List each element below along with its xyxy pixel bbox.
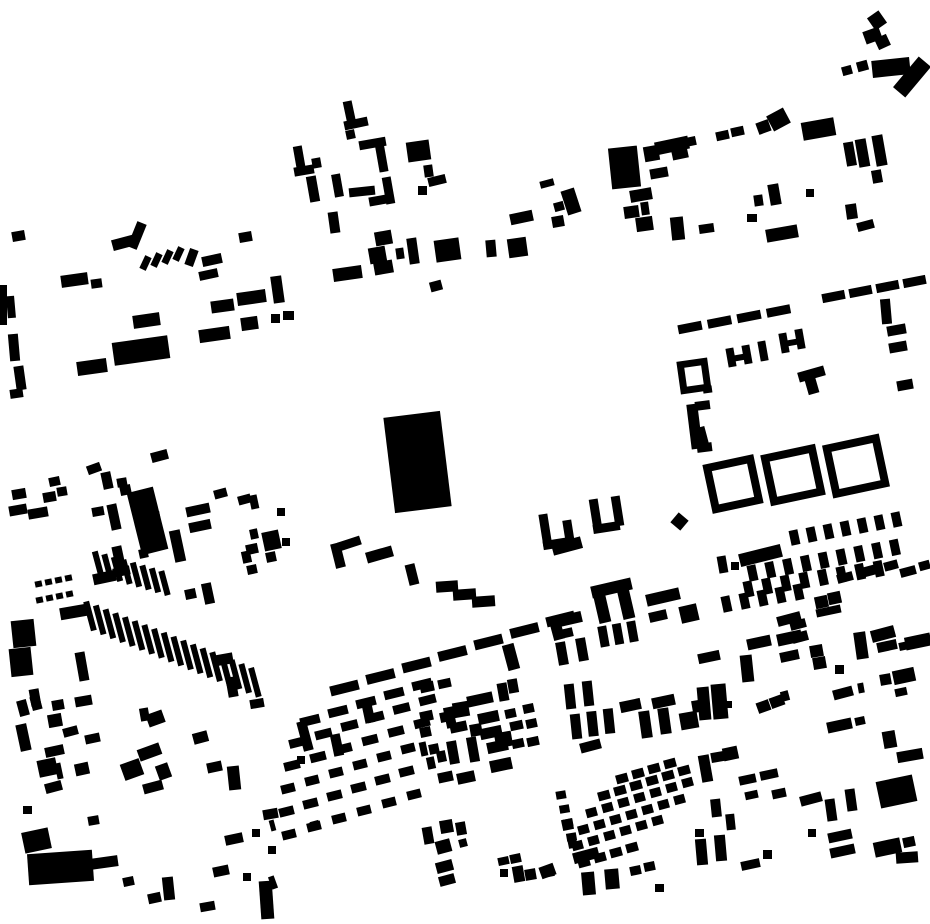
building-footprint xyxy=(827,829,853,844)
building-footprint xyxy=(438,873,456,887)
building-footprint xyxy=(349,186,376,198)
building-footprint xyxy=(623,205,640,219)
row-building-footprint xyxy=(473,634,504,651)
row-building-footprint xyxy=(874,514,886,531)
building-footprint xyxy=(48,476,61,487)
building-footprint xyxy=(283,311,294,320)
row-building-footprint xyxy=(200,648,214,679)
row-building-footprint xyxy=(326,789,343,801)
building-footprint xyxy=(765,224,799,242)
building-footprint xyxy=(509,853,522,864)
building-footprint xyxy=(651,694,676,710)
building-footprint xyxy=(841,65,853,76)
row-building-footprint xyxy=(383,687,405,701)
building-footprint xyxy=(888,341,907,354)
building-footprint xyxy=(44,780,63,794)
building-footprint xyxy=(74,695,92,708)
row-building-footprint xyxy=(35,596,43,603)
building-footprint xyxy=(435,859,454,874)
building-footprint xyxy=(695,839,708,866)
building-footprint xyxy=(504,708,517,719)
row-building-footprint xyxy=(418,694,437,707)
building-footprint xyxy=(84,733,101,745)
courtyard-building-footprint xyxy=(765,448,821,501)
row-building-footprint xyxy=(374,773,391,785)
row-building-footprint xyxy=(645,775,659,787)
building-footprint xyxy=(714,835,727,862)
row-building-footprint xyxy=(823,523,835,540)
building-footprint xyxy=(555,641,569,665)
row-building-footprint xyxy=(161,249,173,265)
building-footprint xyxy=(201,253,223,267)
building-footprint xyxy=(138,548,149,559)
row-building-footprint xyxy=(564,684,577,710)
building-footprint xyxy=(13,365,26,390)
row-building-footprint xyxy=(871,542,883,560)
building-footprint xyxy=(122,876,135,887)
building-footprint xyxy=(853,631,869,659)
building-footprint xyxy=(776,630,803,647)
row-building-footprint xyxy=(585,807,598,819)
building-footprint xyxy=(756,699,772,714)
building-footprint xyxy=(871,169,883,184)
row-building-footprint xyxy=(707,315,732,328)
building-footprint xyxy=(710,751,725,763)
building-footprint xyxy=(655,884,664,892)
building-footprint xyxy=(715,130,730,142)
building-footprint xyxy=(455,821,467,836)
row-building-footprint xyxy=(835,548,847,566)
building-footprint xyxy=(526,736,540,747)
building-footprint xyxy=(767,183,781,206)
row-building-footprint xyxy=(677,321,702,334)
building-footprint xyxy=(269,820,277,832)
row-building-footprint xyxy=(746,564,758,582)
building-footprint xyxy=(670,512,688,530)
building-footprint xyxy=(879,673,892,686)
row-building-footprint xyxy=(766,304,791,317)
building-footprint xyxy=(162,876,175,900)
building-footprint xyxy=(771,788,787,800)
row-building-footprint xyxy=(398,765,415,777)
row-building-footprint xyxy=(661,770,675,782)
building-footprint xyxy=(551,215,565,228)
building-footprint xyxy=(883,559,899,571)
building-footprint xyxy=(210,298,234,313)
row-building-footprint xyxy=(509,622,540,639)
row-building-footprint xyxy=(161,632,175,663)
building-footprint xyxy=(240,316,259,331)
row-building-footprint xyxy=(158,570,170,596)
building-footprint xyxy=(697,687,712,721)
building-footprint xyxy=(374,141,388,172)
figure-ground-map xyxy=(0,0,930,924)
row-building-footprint xyxy=(577,824,590,836)
building-footprint xyxy=(485,240,496,258)
building-footprint xyxy=(246,564,258,575)
building-footprint xyxy=(575,637,589,661)
building-footprint xyxy=(829,844,856,859)
row-building-footprint xyxy=(327,705,349,719)
building-footprint xyxy=(657,707,672,734)
row-building-footprint xyxy=(626,620,639,642)
row-building-footprint xyxy=(150,252,162,268)
building-footprint xyxy=(243,873,251,881)
building-footprint xyxy=(150,449,169,463)
building-footprint xyxy=(15,723,31,752)
building-footprint xyxy=(678,603,699,624)
building-footprint xyxy=(452,701,470,719)
building-footprint xyxy=(27,850,94,885)
row-building-footprint xyxy=(122,616,136,647)
building-footprint xyxy=(604,868,620,889)
row-building-footprint xyxy=(800,555,812,573)
building-footprint xyxy=(799,791,823,806)
building-footprint xyxy=(880,299,892,325)
building-footprint xyxy=(899,565,917,578)
building-footprint xyxy=(100,471,113,490)
building-footprint xyxy=(472,595,496,608)
row-building-footprint xyxy=(840,520,852,537)
building-footprint xyxy=(184,588,197,600)
building-footprint xyxy=(670,216,685,240)
row-building-footprint xyxy=(619,825,632,837)
building-footprint xyxy=(127,487,169,556)
building-footprint xyxy=(581,871,596,895)
building-footprint xyxy=(525,718,538,729)
building-footprint xyxy=(560,187,581,215)
row-building-footprint xyxy=(582,681,595,707)
row-building-footprint xyxy=(853,545,865,563)
building-footprint xyxy=(213,487,228,499)
building-footprint xyxy=(730,126,745,138)
building-footprint xyxy=(843,141,857,166)
row-building-footprint xyxy=(314,728,333,741)
building-footprint xyxy=(497,856,509,866)
building-footprint xyxy=(469,723,483,737)
row-building-footprint xyxy=(818,551,830,569)
building-footprint xyxy=(902,836,916,848)
row-building-footprint xyxy=(817,569,829,587)
building-footprint xyxy=(331,173,344,197)
building-footprint xyxy=(876,774,918,808)
building-footprint xyxy=(91,506,104,517)
row-building-footprint xyxy=(356,804,372,816)
building-footprint xyxy=(8,334,20,362)
row-building-footprint xyxy=(92,551,104,577)
building-footprint xyxy=(51,699,65,711)
building-footprint xyxy=(896,851,919,864)
building-footprint xyxy=(539,178,554,188)
row-building-footprint xyxy=(806,526,818,543)
row-building-footprint xyxy=(647,763,661,775)
building-footprint xyxy=(6,296,16,319)
row-building-footprint xyxy=(673,794,686,806)
row-building-footprint xyxy=(64,574,72,581)
row-building-footprint xyxy=(406,788,422,800)
building-footprint xyxy=(522,703,535,714)
row-building-footprint xyxy=(848,285,872,298)
row-building-footprint xyxy=(309,751,327,764)
row-building-footprint xyxy=(603,708,616,734)
row-building-footprint xyxy=(629,780,643,792)
courtyard-building-footprint xyxy=(707,459,759,509)
building-footprint xyxy=(679,711,700,731)
building-footprint xyxy=(825,798,838,821)
building-footprint xyxy=(227,765,241,790)
building-footprint xyxy=(896,748,924,763)
row-building-footprint xyxy=(612,623,625,645)
building-footprint xyxy=(835,665,844,674)
building-footprint xyxy=(406,139,432,162)
building-footprint xyxy=(282,538,290,546)
building-footprint xyxy=(405,563,420,586)
building-footprint xyxy=(137,742,163,761)
building-footprint xyxy=(635,216,654,232)
row-building-footprint xyxy=(149,567,161,593)
building-footprint xyxy=(29,695,42,711)
building-footprint xyxy=(894,687,907,697)
building-footprint xyxy=(466,691,494,707)
building-footprint xyxy=(265,551,277,563)
row-building-footprint xyxy=(306,820,322,832)
row-building-footprint xyxy=(350,781,367,793)
building-footprint xyxy=(86,462,102,475)
courtyard-building-footprint xyxy=(827,438,885,493)
building-footprint xyxy=(21,827,52,853)
building-footprint xyxy=(270,275,285,303)
row-building-footprint xyxy=(331,812,347,824)
building-footprint xyxy=(76,358,108,376)
building-footprint xyxy=(311,157,322,168)
row-building-footprint xyxy=(635,820,648,832)
row-building-footprint xyxy=(559,804,570,814)
building-footprint xyxy=(435,838,453,854)
building-footprint xyxy=(494,731,513,749)
row-building-footprint xyxy=(625,842,639,854)
building-footprint xyxy=(753,194,763,206)
building-footprint xyxy=(429,280,443,293)
building-footprint xyxy=(199,901,215,912)
building-footprint xyxy=(11,230,26,242)
building-footprint xyxy=(579,738,602,753)
building-footprint xyxy=(856,219,875,232)
building-footprint xyxy=(188,519,212,533)
row-building-footprint xyxy=(665,782,678,794)
building-footprint xyxy=(500,869,508,877)
row-building-footprint xyxy=(400,742,416,754)
building-footprint xyxy=(507,237,528,258)
building-footprint xyxy=(332,265,363,282)
building-footprint xyxy=(271,314,280,323)
row-building-footprint xyxy=(677,765,691,777)
building-footprint xyxy=(169,529,186,563)
building-footprint xyxy=(497,682,510,701)
building-footprint xyxy=(593,591,612,624)
row-building-footprint xyxy=(361,734,379,747)
row-building-footprint xyxy=(352,758,368,770)
row-building-footprint xyxy=(613,785,627,797)
row-building-footprint xyxy=(875,280,899,293)
building-footprint xyxy=(806,189,814,197)
building-footprint xyxy=(238,231,253,243)
row-building-footprint xyxy=(625,809,638,821)
row-building-footprint xyxy=(873,560,885,578)
building-footprint xyxy=(249,494,260,509)
row-building-footprint xyxy=(631,768,645,780)
row-building-footprint xyxy=(857,517,869,534)
courtyard-building-footprint xyxy=(680,361,707,390)
row-building-footprint xyxy=(141,624,155,655)
row-building-footprint xyxy=(617,797,630,809)
building-footprint xyxy=(511,738,525,749)
building-footprint xyxy=(509,720,524,732)
building-footprint xyxy=(9,647,34,677)
building-footprint xyxy=(640,202,650,216)
row-building-footprint xyxy=(597,790,611,802)
building-footprint xyxy=(857,683,865,694)
building-footprint-svg xyxy=(0,0,930,924)
building-footprint xyxy=(439,819,454,834)
building-footprint xyxy=(198,326,231,343)
row-building-footprint xyxy=(392,702,411,715)
building-footprint xyxy=(710,799,722,818)
building-footprint xyxy=(882,730,898,749)
building-footprint xyxy=(59,604,88,621)
row-building-footprint xyxy=(401,657,432,674)
building-footprint xyxy=(212,864,230,877)
building-footprint xyxy=(695,829,704,837)
row-building-footprint xyxy=(93,605,107,636)
row-building-footprint xyxy=(328,766,344,778)
building-footprint xyxy=(801,117,837,140)
building-footprint xyxy=(617,587,636,620)
building-footprint xyxy=(892,667,916,685)
building-footprint xyxy=(0,285,7,325)
building-footprint xyxy=(249,698,264,709)
building-footprint xyxy=(724,701,732,708)
row-building-footprint xyxy=(854,563,866,581)
row-building-footprint xyxy=(570,714,583,740)
row-building-footprint xyxy=(902,275,926,288)
building-footprint xyxy=(395,247,404,259)
building-footprint xyxy=(90,278,102,288)
row-building-footprint xyxy=(789,529,801,546)
building-footprint xyxy=(553,201,565,212)
building-footprint xyxy=(509,210,534,226)
building-footprint xyxy=(120,758,145,781)
building-footprint xyxy=(192,730,209,745)
building-footprint xyxy=(507,678,519,694)
row-building-footprint xyxy=(329,680,360,697)
building-footprint xyxy=(809,644,824,658)
building-footprint xyxy=(47,713,63,728)
building-footprint xyxy=(856,60,869,73)
building-footprint xyxy=(695,400,711,411)
building-footprint xyxy=(249,528,259,539)
building-footprint xyxy=(608,146,641,190)
building-footprint xyxy=(697,650,721,664)
row-building-footprint xyxy=(238,663,252,694)
row-building-footprint xyxy=(720,595,732,613)
row-building-footprint xyxy=(889,539,901,557)
building-footprint xyxy=(832,686,854,701)
row-building-footprint xyxy=(302,797,319,809)
building-footprint xyxy=(757,340,768,361)
building-footprint xyxy=(9,388,23,399)
building-footprint xyxy=(16,699,30,717)
row-building-footprint xyxy=(736,310,761,323)
building-footprint xyxy=(808,829,816,837)
building-footprint xyxy=(419,741,429,756)
building-footprint xyxy=(638,710,653,738)
building-footprint xyxy=(722,746,739,762)
building-footprint xyxy=(106,503,121,531)
row-building-footprint xyxy=(381,796,397,808)
row-building-footprint xyxy=(593,819,606,831)
row-building-footprint xyxy=(139,255,151,271)
row-building-footprint xyxy=(587,835,600,847)
building-footprint xyxy=(436,750,447,763)
building-footprint xyxy=(779,649,800,663)
building-footprint xyxy=(328,211,341,233)
building-footprint xyxy=(426,756,436,769)
building-footprint xyxy=(42,491,57,503)
building-footprint xyxy=(845,788,858,811)
building-footprint xyxy=(629,865,642,876)
building-footprint xyxy=(112,335,171,366)
row-building-footprint xyxy=(283,759,301,772)
building-footprint xyxy=(747,214,757,222)
row-building-footprint xyxy=(171,636,185,667)
row-building-footprint xyxy=(54,576,62,583)
building-footprint xyxy=(871,134,887,166)
row-building-footprint xyxy=(681,777,694,789)
row-building-footprint xyxy=(281,828,297,840)
building-footprint xyxy=(268,846,276,854)
building-footprint xyxy=(845,203,858,219)
row-building-footprint xyxy=(562,818,573,828)
row-building-footprint xyxy=(657,799,670,811)
row-building-footprint xyxy=(34,580,42,587)
building-footprint xyxy=(368,195,387,207)
row-building-footprint xyxy=(278,805,295,817)
building-footprint xyxy=(731,562,739,570)
building-footprint xyxy=(147,892,162,904)
row-building-footprint xyxy=(597,625,610,647)
row-building-footprint xyxy=(586,711,599,737)
row-building-footprint xyxy=(132,620,146,651)
building-footprint xyxy=(717,555,729,573)
building-footprint xyxy=(466,736,480,762)
row-building-footprint xyxy=(248,667,262,698)
row-building-footprint xyxy=(641,804,654,816)
building-footprint xyxy=(814,595,829,609)
building-footprint xyxy=(155,762,172,781)
row-building-footprint xyxy=(365,668,396,685)
row-building-footprint xyxy=(55,592,63,599)
building-footprint xyxy=(252,829,260,837)
building-footprint xyxy=(277,508,285,516)
row-building-footprint xyxy=(299,714,321,728)
building-footprint xyxy=(896,379,913,392)
building-footprint xyxy=(383,411,451,513)
row-building-footprint xyxy=(139,565,151,591)
building-footprint xyxy=(725,814,736,831)
building-footprint xyxy=(629,187,653,203)
building-footprint xyxy=(142,780,164,795)
building-footprint xyxy=(374,230,393,247)
